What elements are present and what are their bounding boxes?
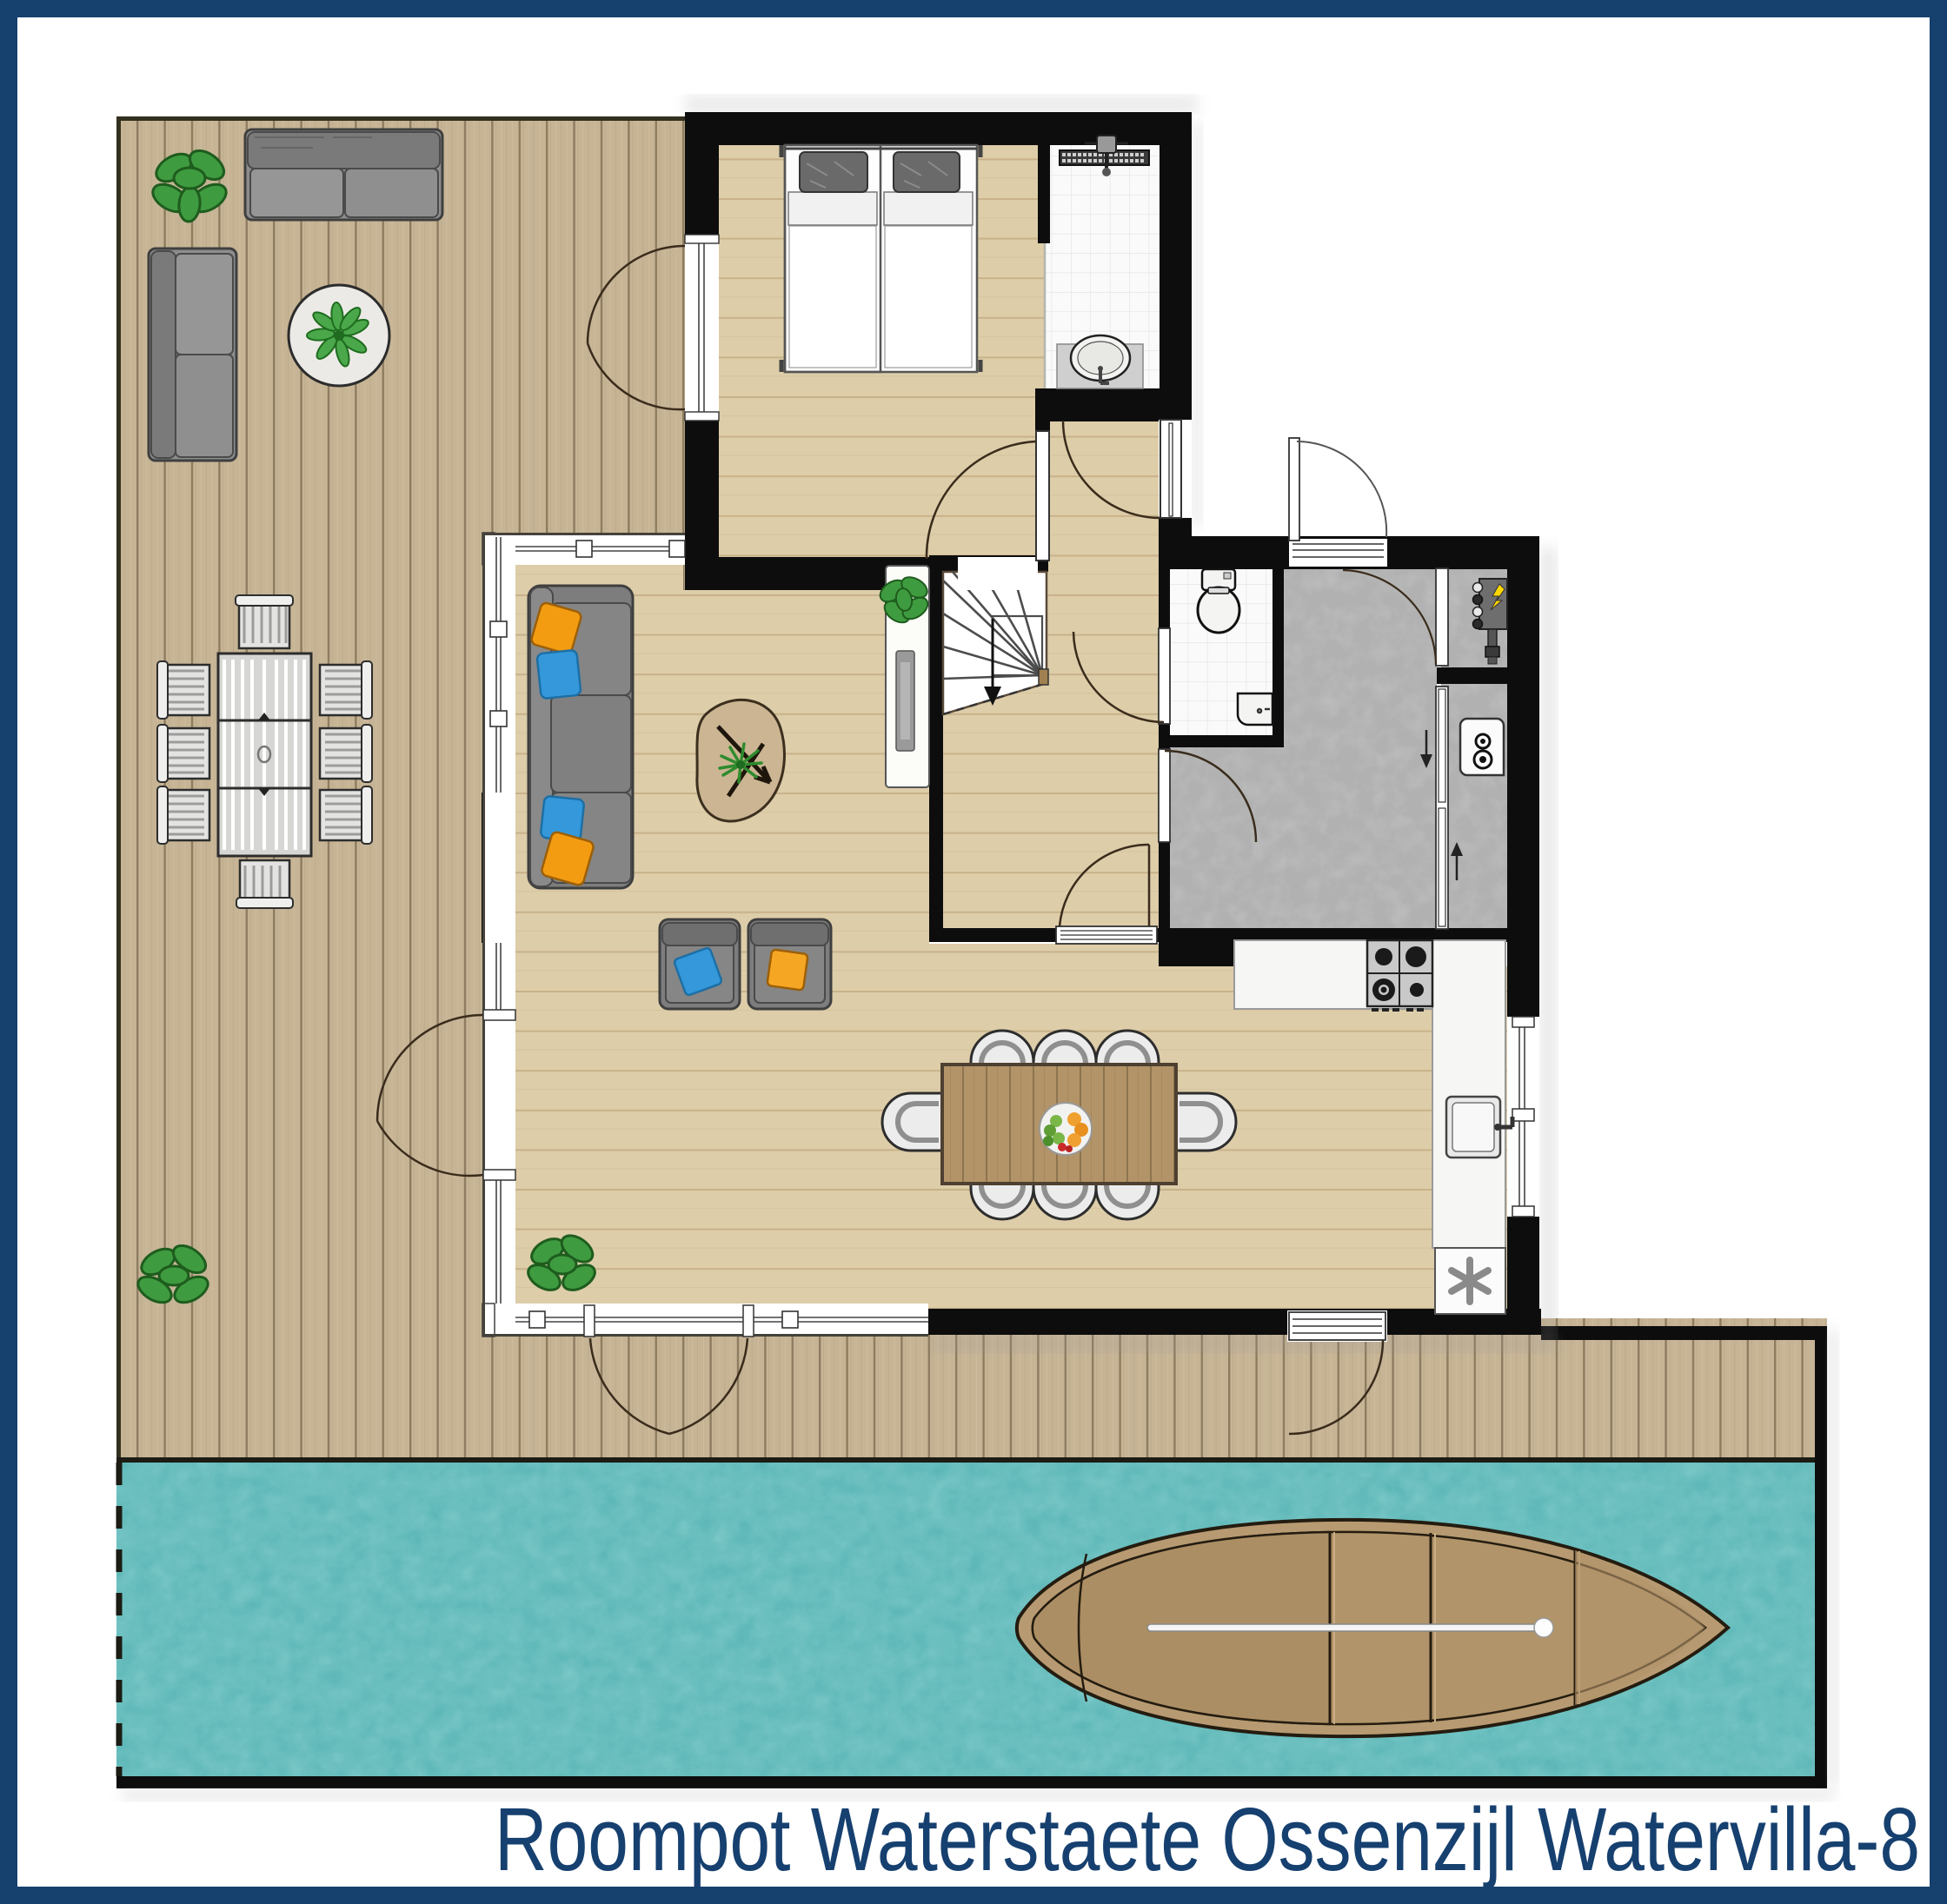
svg-text:Roompot Waterstaete Ossenzijl: Roompot Waterstaete Ossenzijl Watervilla…	[495, 1789, 1920, 1889]
